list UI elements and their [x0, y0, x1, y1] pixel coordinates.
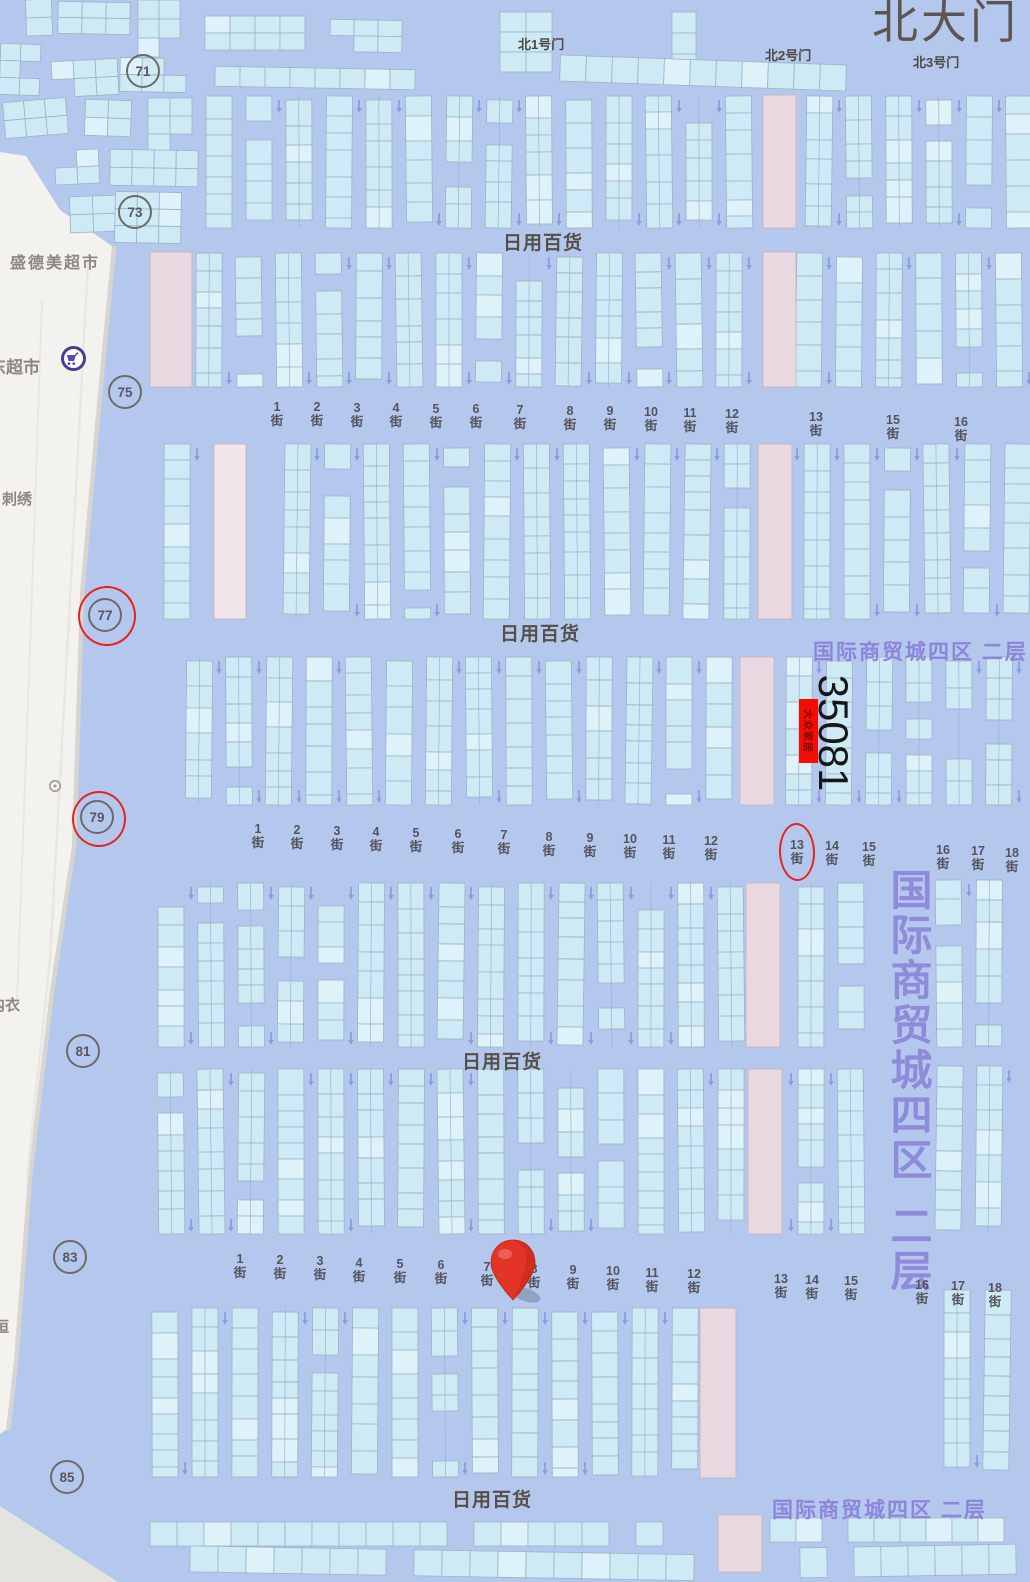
pink-block — [758, 444, 792, 619]
street-label: 16街 — [936, 843, 950, 871]
pink-block — [718, 1515, 762, 1572]
zone-label-vertical: 国际商贸城四区 — [878, 868, 939, 1183]
street-label: 4街 — [390, 401, 403, 429]
area-label-daily-goods-2: 日用百货 — [500, 619, 580, 646]
street-label: 1街 — [252, 822, 265, 850]
road-marker-75: 75 — [108, 375, 142, 409]
street-label: 1街 — [234, 1252, 247, 1280]
road-bottom-wedge — [0, 1506, 118, 1582]
booth-tag-text: 大众家居 — [801, 709, 816, 753]
north-gate-2-label: 北2号门 — [765, 45, 811, 64]
street-label: 10街 — [623, 832, 637, 860]
street-label: 4街 — [370, 825, 383, 853]
map-canvas[interactable]: 北大门 北1号门 北2号门 北3号门 日用百货 日用百货 日用百货 日用百货 国… — [0, 0, 1030, 1582]
zone-label-vertical-floor: 二层 — [878, 1204, 939, 1294]
roadside-embroidery-label: 刺绣 — [2, 488, 32, 509]
roadside-supermarket-label: 东超市 — [0, 353, 40, 378]
pink-block — [763, 252, 796, 387]
street-label: 7街 — [514, 403, 527, 431]
street-label: 16街 — [954, 415, 968, 443]
street-label: 8街 — [543, 830, 556, 858]
pink-block — [748, 1069, 782, 1234]
street-label: 13街 — [809, 410, 823, 438]
road-marker-85: 85 — [50, 1460, 84, 1494]
zone-label-bottom: 国际商贸城四区 二层 — [772, 1494, 987, 1524]
street-label: 6街 — [470, 402, 483, 430]
street-label: 5街 — [430, 402, 443, 430]
pink-block — [746, 883, 780, 1047]
street-label: 2街 — [274, 1253, 287, 1281]
pink-block — [214, 444, 246, 619]
road-marker-81: 81 — [66, 1034, 100, 1068]
north-gate-1-label: 北1号门 — [518, 34, 564, 53]
pink-block — [763, 95, 796, 228]
street-label: 17街 — [951, 1279, 965, 1307]
street-label: 12街 — [725, 407, 739, 435]
street-label: 18街 — [1005, 846, 1019, 874]
street-label: 10街 — [606, 1264, 620, 1292]
street-label: 11街 — [683, 406, 696, 434]
street-label: 5街 — [394, 1257, 407, 1285]
area-label-daily-goods-1: 日用百货 — [503, 228, 583, 255]
street-label: 3街 — [331, 824, 344, 852]
street-label: 18街 — [988, 1281, 1002, 1309]
street-label: 2街 — [291, 823, 304, 851]
street-label: 9街 — [567, 1263, 580, 1291]
road-marker-71: 71 — [126, 54, 160, 88]
street-label: 8街 — [564, 404, 577, 432]
road-marker-77: 77 — [88, 598, 122, 632]
street-label: 12街 — [704, 834, 718, 862]
road-marker-73: 73 — [118, 195, 152, 229]
street-label: 4街 — [353, 1256, 366, 1284]
street-label: 14街 — [805, 1273, 819, 1301]
pink-block — [700, 1308, 736, 1478]
street-label: 14街 — [825, 839, 839, 867]
area-label-daily-goods-3: 日用百货 — [462, 1047, 542, 1074]
area-label-daily-goods-4: 日用百货 — [452, 1485, 532, 1512]
road-marker-79: 79 — [80, 800, 114, 834]
roadside-partial-label: 恒 — [0, 1316, 9, 1337]
street-label: 10街 — [644, 405, 658, 433]
street-label: 9街 — [604, 404, 617, 432]
street-label: 2街 — [311, 400, 324, 428]
roadside-clothing-label: 内衣 — [0, 994, 20, 1015]
street-label: 5街 — [410, 826, 423, 854]
street-label: 11街 — [662, 833, 675, 861]
street-label: 1街 — [271, 400, 284, 428]
roadside-store-label: 盛德美超市 — [10, 249, 104, 273]
street-label: 15街 — [862, 840, 876, 868]
road-marker-83: 83 — [53, 1240, 87, 1274]
location-pin[interactable] — [488, 1238, 544, 1304]
street-label: 16街 — [915, 1278, 929, 1306]
street-label: 3街 — [351, 401, 364, 429]
road-dot-icon — [48, 779, 62, 793]
street-label: 6街 — [435, 1258, 448, 1286]
street-label: 13街 — [790, 838, 804, 866]
street-label: 12街 — [687, 1267, 701, 1295]
street-label: 17街 — [971, 844, 985, 872]
street-label: 9街 — [584, 831, 597, 859]
north-gate-3-label: 北3号门 — [913, 52, 959, 71]
pink-block — [150, 252, 192, 387]
zone-label-top: 国际商贸城四区 二层 — [813, 636, 1028, 666]
street-label: 15街 — [886, 413, 900, 441]
street-label: 7街 — [498, 828, 511, 856]
street-label: 13街 — [774, 1272, 788, 1300]
north-main-gate-label: 北大门 — [872, 0, 1019, 52]
pink-block — [740, 657, 774, 805]
supermarket-poi-icon — [60, 345, 87, 372]
street-label: 11街 — [645, 1266, 658, 1294]
booth-tag: 大众家居 — [799, 699, 818, 763]
street-label: 3街 — [314, 1254, 327, 1282]
street-label: 15街 — [844, 1274, 858, 1302]
street-label: 6街 — [452, 827, 465, 855]
